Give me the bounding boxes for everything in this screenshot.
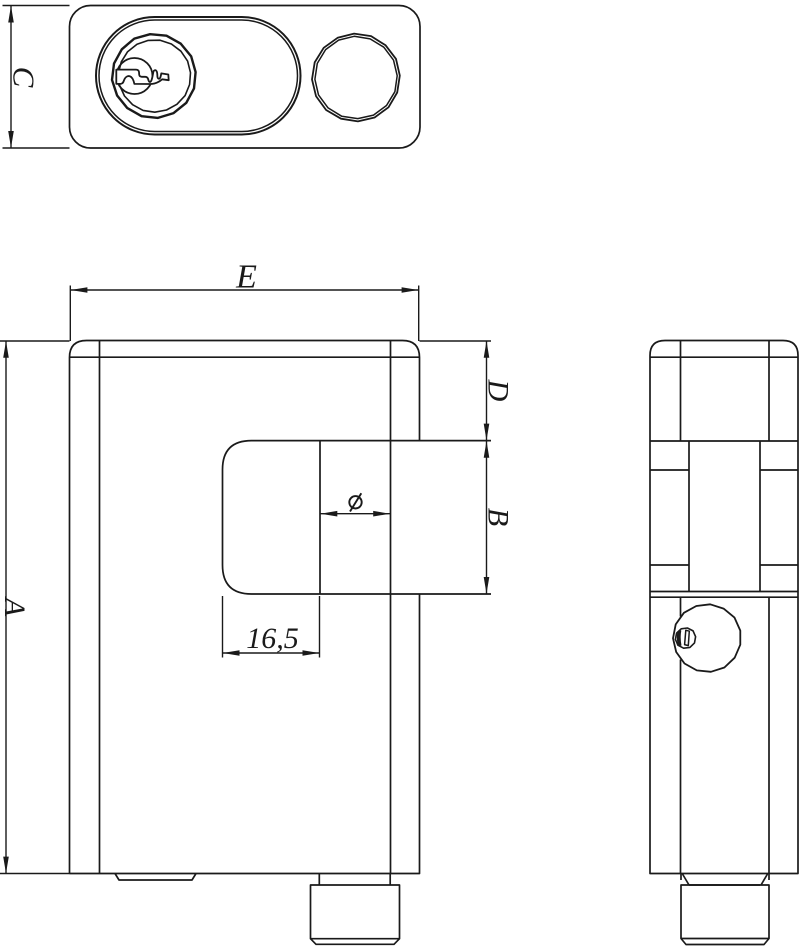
svg-text:C: C [7, 67, 42, 88]
svg-text:16,5: 16,5 [246, 622, 299, 655]
svg-text:D: D [482, 379, 515, 402]
svg-text:A: A [0, 596, 31, 617]
svg-text:B: B [482, 508, 515, 526]
svg-text:E: E [235, 259, 257, 296]
